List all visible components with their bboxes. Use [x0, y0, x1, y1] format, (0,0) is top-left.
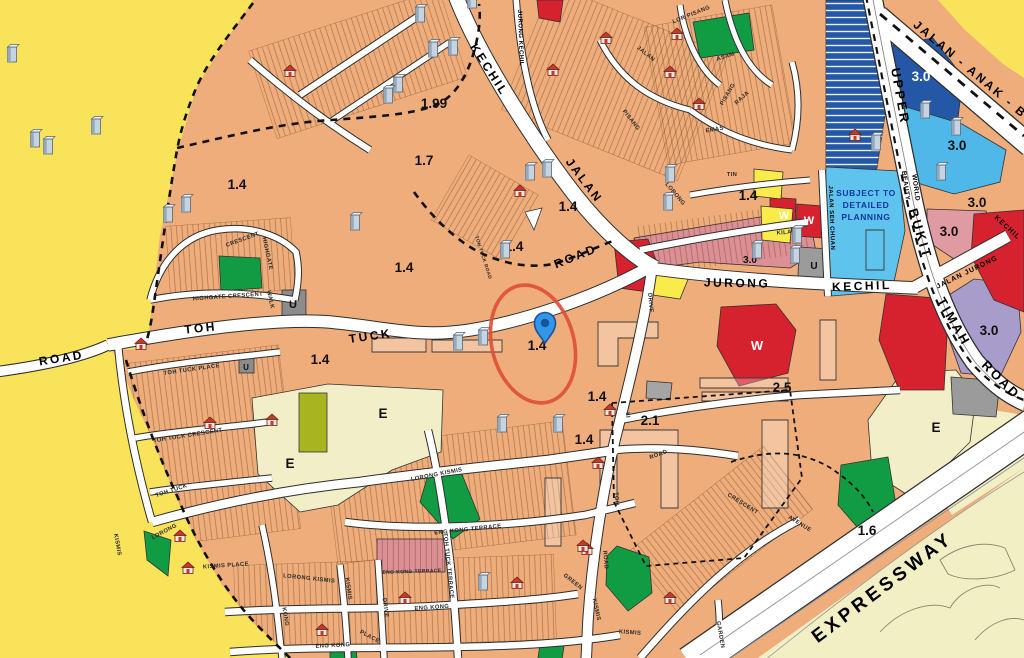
- zone-olive: [299, 393, 327, 452]
- zone-green: [219, 256, 262, 291]
- zone-label: W: [804, 215, 815, 227]
- zone-label: 1.4: [228, 177, 247, 192]
- zone-label: 1.4: [575, 432, 594, 447]
- zone-label: 1.6: [858, 523, 877, 538]
- subject-to-detailed-planning-label: SUBJECT TODETAILEDPLANNING: [836, 188, 896, 222]
- zone-label: 1.4: [395, 260, 414, 275]
- zone-label: 1.7: [415, 153, 434, 168]
- zone-label: E: [931, 420, 940, 435]
- zone-red: [537, 0, 563, 22]
- zone-label: 1.4: [588, 389, 607, 404]
- zone-label: 3.0: [980, 323, 999, 338]
- map-canvas: HIGHGATE CRESCENTCRESCENTHIGHGATEWALKTOH…: [0, 0, 1024, 658]
- zoning-map: HIGHGATE CRESCENTCRESCENTHIGHGATEWALKTOH…: [0, 0, 1024, 658]
- road-label: JURONG: [704, 275, 771, 290]
- zone-label: 1.4: [311, 352, 330, 367]
- subject-planning-line: SUBJECT TO: [836, 188, 896, 198]
- zone-label: 2.5: [773, 380, 792, 395]
- zone-label: 1.4: [559, 199, 578, 214]
- zone-label: 3.0: [968, 195, 987, 210]
- zone-label: 3.0: [948, 138, 967, 153]
- zone-gray: [646, 381, 672, 400]
- zone-label: 1.4: [739, 188, 758, 203]
- zone-label: E: [285, 456, 294, 471]
- zone-label: U: [289, 299, 297, 311]
- subject-planning-line: PLANNING: [841, 212, 890, 222]
- subject-planning-line: DETAILED: [843, 200, 890, 210]
- zone-label: E: [378, 406, 387, 421]
- zone-label: 2.1: [641, 413, 660, 428]
- zone-label: W: [779, 210, 790, 222]
- road-label: KECHIL: [832, 278, 892, 294]
- street-label: TOH: [612, 492, 619, 506]
- zone-label: 3.0: [940, 224, 959, 239]
- zone-label: U: [243, 363, 249, 372]
- street-label: YI: [624, 412, 631, 419]
- zone-label: W: [751, 338, 764, 353]
- street-label: TIN: [727, 172, 738, 178]
- zone-subject-planning: [824, 167, 905, 296]
- zone-label: 1.99: [421, 96, 447, 111]
- zone-label: 3.0: [912, 69, 931, 84]
- zone-label: U: [810, 261, 817, 272]
